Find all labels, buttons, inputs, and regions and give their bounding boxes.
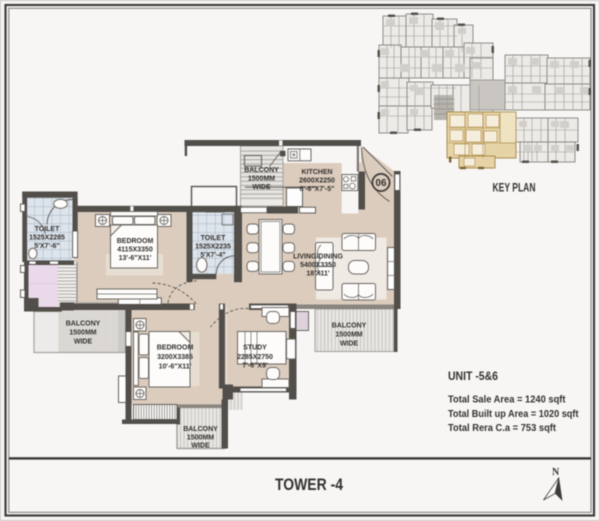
svg-text:1500MM: 1500MM [69, 330, 96, 337]
svg-text:BEDROOM: BEDROOM [157, 345, 194, 352]
svg-text:BALCONY: BALCONY [244, 167, 279, 174]
svg-text:1500MM: 1500MM [187, 435, 214, 442]
svg-text:4115X3350: 4115X3350 [117, 247, 153, 254]
svg-text:3200X3385: 3200X3385 [157, 354, 193, 361]
svg-text:KITCHEN: KITCHEN [301, 169, 332, 176]
svg-text:18'X11': 18'X11' [306, 271, 330, 278]
svg-text:8'-6"X7'-5": 8'-6"X7'-5" [300, 186, 335, 193]
svg-text:WIDE: WIDE [191, 443, 210, 450]
svg-text:1525X2285: 1525X2285 [29, 235, 65, 242]
svg-text:1525X2235: 1525X2235 [195, 244, 231, 251]
svg-text:1500MM: 1500MM [248, 176, 275, 183]
svg-text:TOILET: TOILET [35, 226, 60, 233]
svg-text:Total Built up Area = 1020 sqf: Total Built up Area = 1020 sqft [448, 409, 579, 420]
svg-text:TOILET: TOILET [201, 235, 226, 242]
svg-text:STUDY: STUDY [243, 345, 267, 352]
svg-text:2285X2750: 2285X2750 [237, 354, 273, 361]
svg-text:WIDE: WIDE [252, 184, 271, 191]
svg-text:UNIT -5&6: UNIT -5&6 [448, 370, 498, 383]
svg-text:5400X3350: 5400X3350 [300, 262, 336, 269]
svg-text:BALCONY: BALCONY [183, 426, 218, 433]
svg-text:BALCONY: BALCONY [332, 323, 367, 330]
svg-text:LIVING/DINING: LIVING/DINING [293, 254, 343, 261]
svg-text:BEDROOM: BEDROOM [117, 238, 154, 245]
svg-text:2600X2250: 2600X2250 [299, 178, 335, 185]
svg-text:Total Sale Area = 1240 sqft: Total Sale Area = 1240 sqft [448, 394, 566, 405]
svg-text:06: 06 [376, 178, 387, 189]
svg-text:10'-6"X11': 10'-6"X11' [159, 364, 192, 371]
svg-text:KEY PLAN: KEY PLAN [493, 183, 536, 195]
svg-text:N: N [552, 467, 560, 478]
svg-text:7'-6"X9': 7'-6"X9' [242, 363, 268, 370]
svg-text:1500MM: 1500MM [335, 332, 362, 339]
svg-text:13'-6"X11': 13'-6"X11' [119, 255, 152, 262]
svg-text:TOWER -4: TOWER -4 [275, 475, 343, 494]
svg-text:Total Rera C.a = 753 sqft: Total Rera C.a = 753 sqft [448, 423, 557, 434]
svg-text:BALCONY: BALCONY [66, 321, 101, 328]
svg-text:5'X7'-6": 5'X7'-6" [34, 243, 59, 250]
svg-text:5'X7'-4": 5'X7'-4" [200, 252, 225, 259]
svg-text:WIDE: WIDE [340, 341, 359, 348]
svg-text:WIDE: WIDE [74, 339, 93, 346]
